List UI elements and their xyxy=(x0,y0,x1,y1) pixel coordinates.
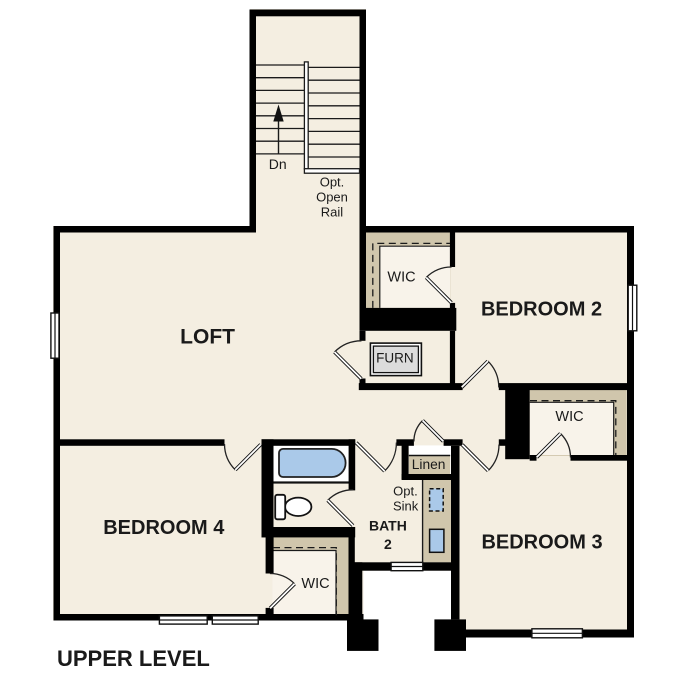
svg-text:Dn: Dn xyxy=(269,156,287,172)
svg-text:BEDROOM 4: BEDROOM 4 xyxy=(103,517,225,539)
svg-text:Opt.: Opt. xyxy=(320,175,345,190)
svg-text:BEDROOM 3: BEDROOM 3 xyxy=(481,532,602,554)
svg-text:FURN: FURN xyxy=(376,351,414,366)
svg-text:Linen: Linen xyxy=(412,457,446,472)
svg-text:2: 2 xyxy=(384,536,392,552)
svg-text:Open: Open xyxy=(316,190,348,205)
svg-text:WIC: WIC xyxy=(387,270,415,286)
svg-text:WIC: WIC xyxy=(301,576,329,592)
svg-text:LOFT: LOFT xyxy=(180,326,235,349)
svg-text:WIC: WIC xyxy=(555,409,583,425)
svg-text:Sink: Sink xyxy=(393,499,419,514)
svg-text:Rail: Rail xyxy=(321,205,344,220)
svg-text:BATH: BATH xyxy=(369,518,407,534)
svg-text:Opt.: Opt. xyxy=(393,484,418,499)
svg-text:BEDROOM 2: BEDROOM 2 xyxy=(481,299,602,321)
svg-text:UPPER LEVEL: UPPER LEVEL xyxy=(57,646,210,671)
